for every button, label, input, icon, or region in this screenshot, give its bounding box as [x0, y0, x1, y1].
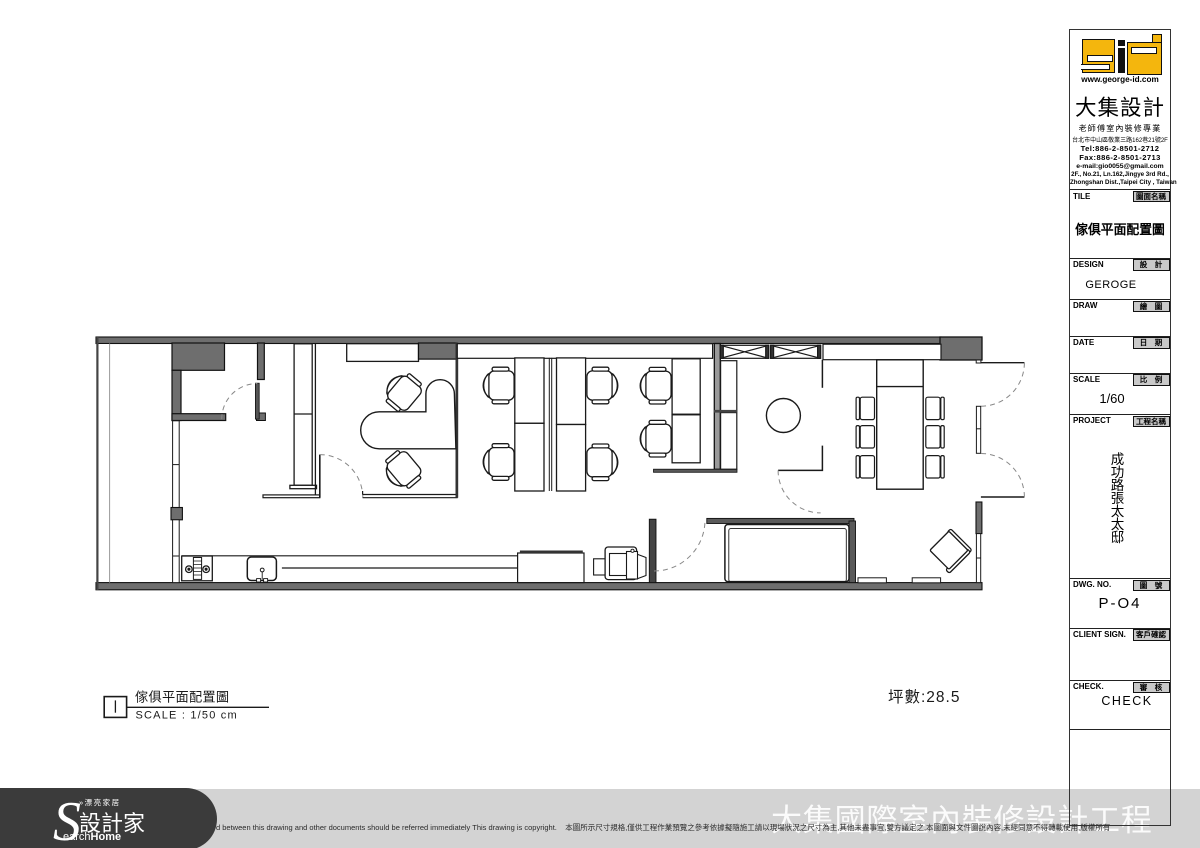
svg-text:傢俱平面配置圖: 傢俱平面配置圖	[135, 690, 229, 705]
svg-text:坪數:28.5: 坪數:28.5	[888, 688, 960, 706]
svg-text:SCALE : 1/50 cm: SCALE : 1/50 cm	[136, 710, 238, 722]
